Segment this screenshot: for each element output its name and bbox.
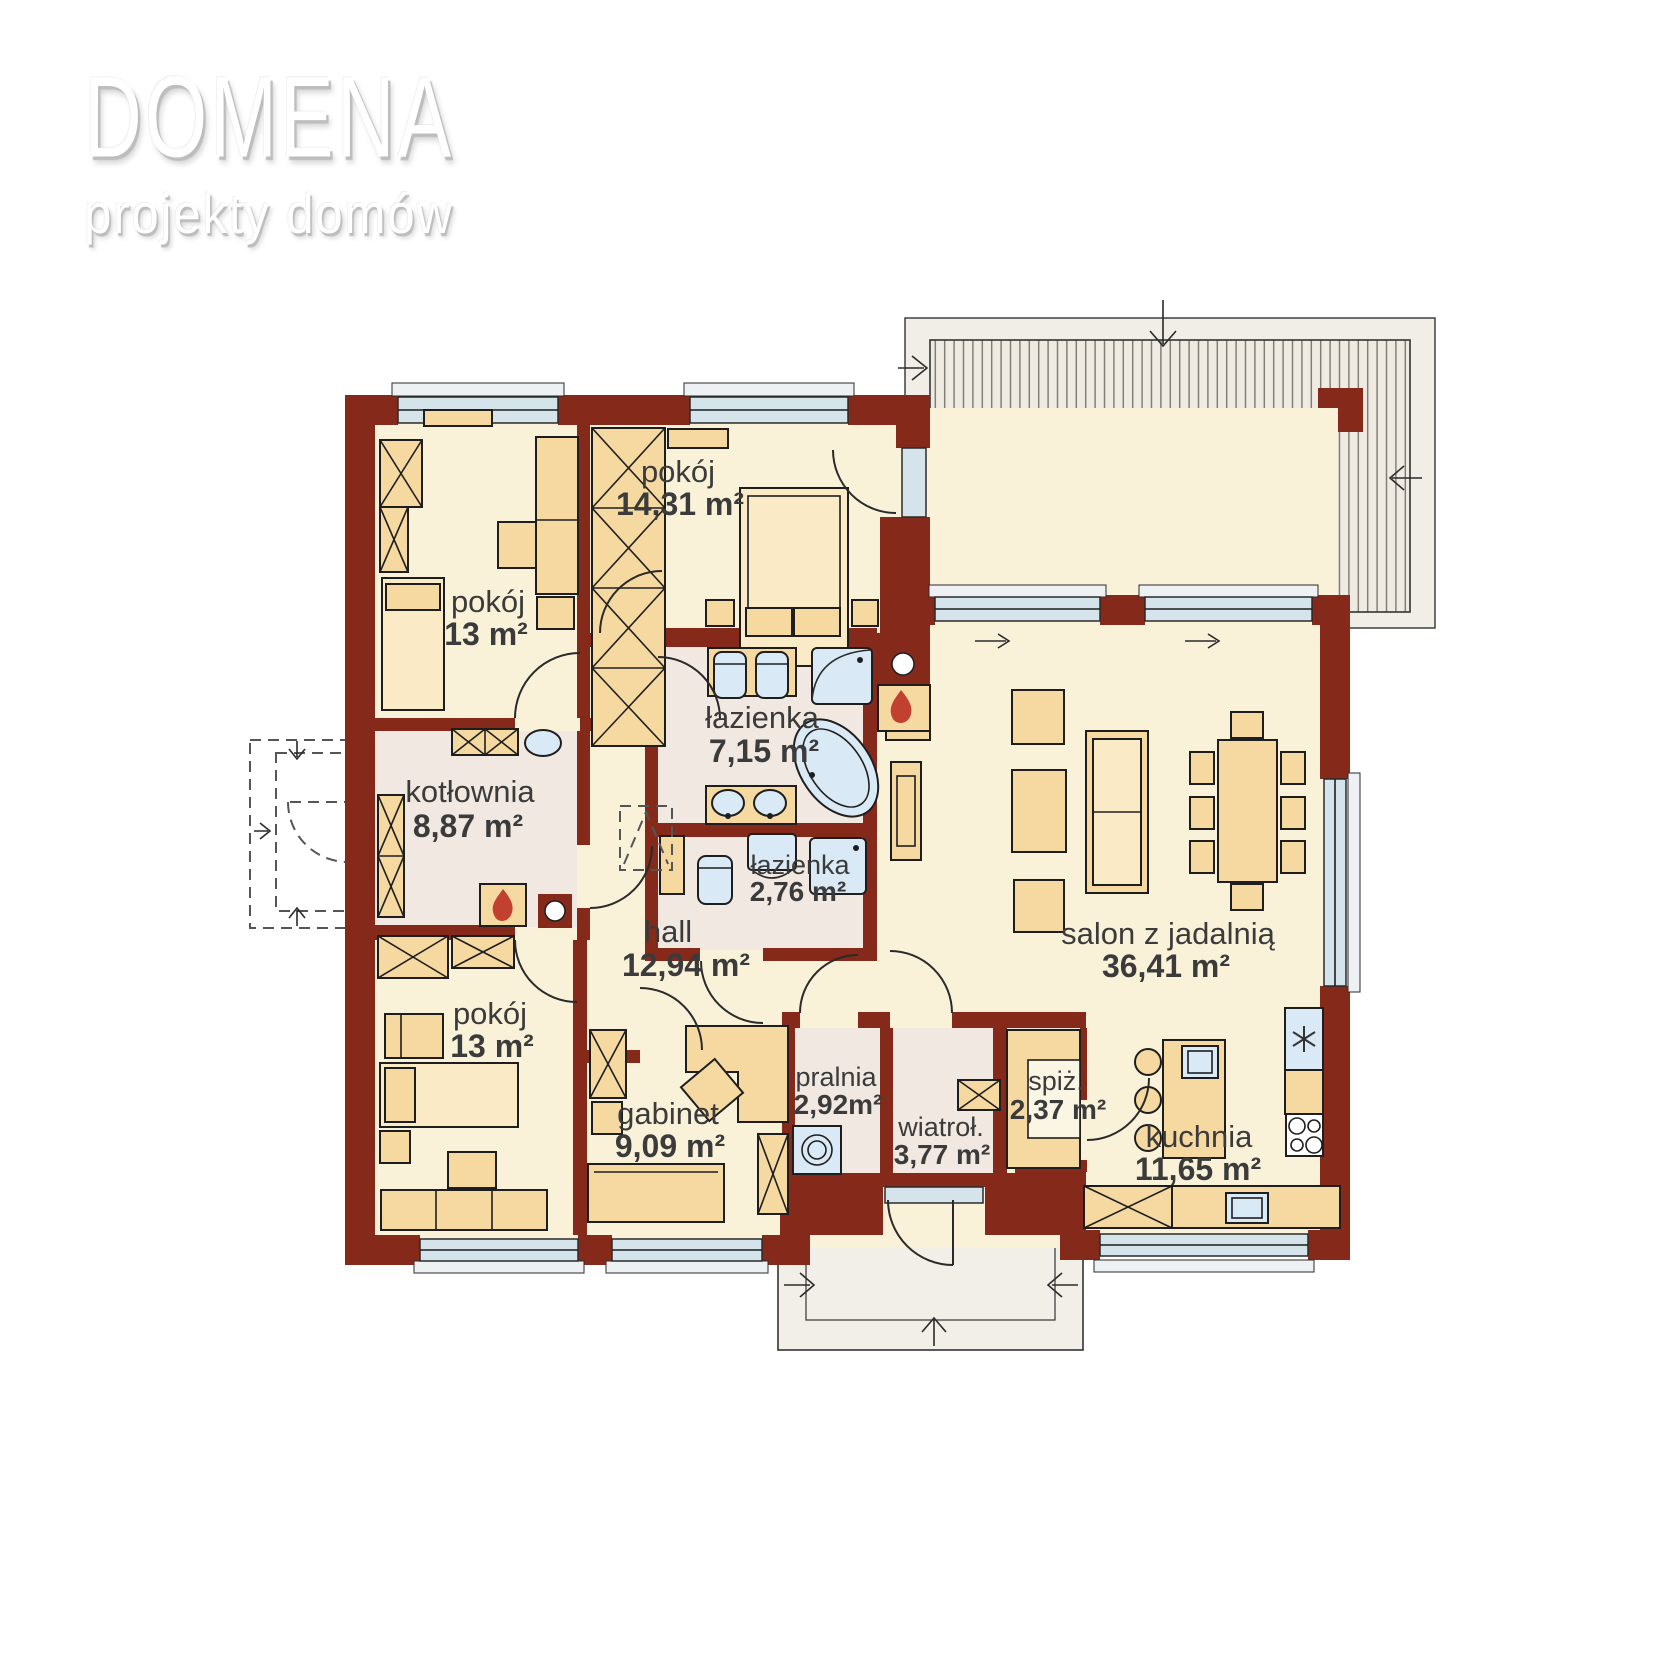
room-area-pokoj-3: 13 m² xyxy=(450,1028,534,1064)
room-label-pralnia: pralnia xyxy=(795,1062,877,1092)
chair-icon xyxy=(1190,797,1214,829)
sink-icon xyxy=(525,730,561,756)
room-label-hall: hall xyxy=(644,914,692,949)
double-bed-icon xyxy=(740,488,848,666)
room-label-gabinet: gabinet xyxy=(617,1096,719,1131)
terrace-door-glass xyxy=(902,448,926,517)
room-area-lazienka-2: 2,76 m² xyxy=(750,876,847,907)
chair-icon xyxy=(448,1152,496,1188)
armchair-icon xyxy=(1012,690,1064,744)
bidet-icon xyxy=(756,652,788,698)
floor-plan-page: DOMENA projekty domów xyxy=(0,0,1680,1680)
room-area-pralnia: 2,92m² xyxy=(794,1089,883,1120)
room-area-wiatrolap: 3,77 m² xyxy=(894,1139,991,1170)
room-label-wiatrolap: wiatroł. xyxy=(897,1112,984,1142)
chair-icon xyxy=(498,522,538,568)
room-area-gabinet: 9,09 m² xyxy=(615,1128,725,1164)
dining-table-icon xyxy=(1218,740,1277,882)
front-door-glass xyxy=(885,1187,983,1203)
room-label-pokoj-2: pokój xyxy=(451,584,525,619)
optional-side-porch xyxy=(250,740,348,928)
armchair-icon xyxy=(1012,770,1066,852)
room-label-kotlownia: kotłownia xyxy=(405,774,535,809)
sink-icon xyxy=(712,790,744,816)
drain-icon xyxy=(545,901,565,921)
chair-icon xyxy=(1281,797,1305,829)
chair-icon xyxy=(1281,841,1305,873)
room-area-hall: 12,94 m² xyxy=(622,947,750,983)
chair-icon xyxy=(1190,752,1214,784)
room-area-lazienka-1: 7,15 m² xyxy=(709,733,819,769)
room-label-spizarnia: spiż. xyxy=(1028,1066,1084,1096)
armchair-icon xyxy=(1014,880,1064,932)
desk-icon xyxy=(381,1190,547,1230)
room-area-pokoj-2: 13 m² xyxy=(444,616,528,652)
room-area-pokoj-1: 14,31 m² xyxy=(616,486,744,522)
room-label-kuchnia: kuchnia xyxy=(1146,1119,1254,1154)
chair-icon xyxy=(1190,841,1214,873)
room-label-salon: salon z jadalnią xyxy=(1061,916,1275,951)
chimney-icon xyxy=(892,653,914,675)
chair-icon xyxy=(1231,884,1263,910)
room-area-kuchnia: 11,65 m² xyxy=(1135,1151,1261,1187)
room-label-pokoj-3: pokój xyxy=(453,996,527,1031)
room-area-kotlownia: 8,87 m² xyxy=(413,808,523,844)
room-label-pokoj-1: pokój xyxy=(641,454,715,489)
floorplan-svg: pokój 14,31 m² pokój 13 m² kotłownia 8,8… xyxy=(0,0,1680,1680)
toilet-icon xyxy=(714,652,746,698)
washer-icon xyxy=(793,1126,841,1174)
armchair-icon xyxy=(385,1014,443,1058)
stool-icon xyxy=(1135,1049,1161,1075)
chair-icon xyxy=(1281,752,1305,784)
room-label-lazienka-1: łazienka xyxy=(705,700,819,735)
room-area-salon: 36,41 m² xyxy=(1102,948,1230,984)
chair-icon xyxy=(1231,712,1263,738)
sink-icon xyxy=(754,790,786,816)
room-area-spizarnia: 2,37 m² xyxy=(1010,1094,1107,1125)
toilet-icon xyxy=(698,856,732,904)
